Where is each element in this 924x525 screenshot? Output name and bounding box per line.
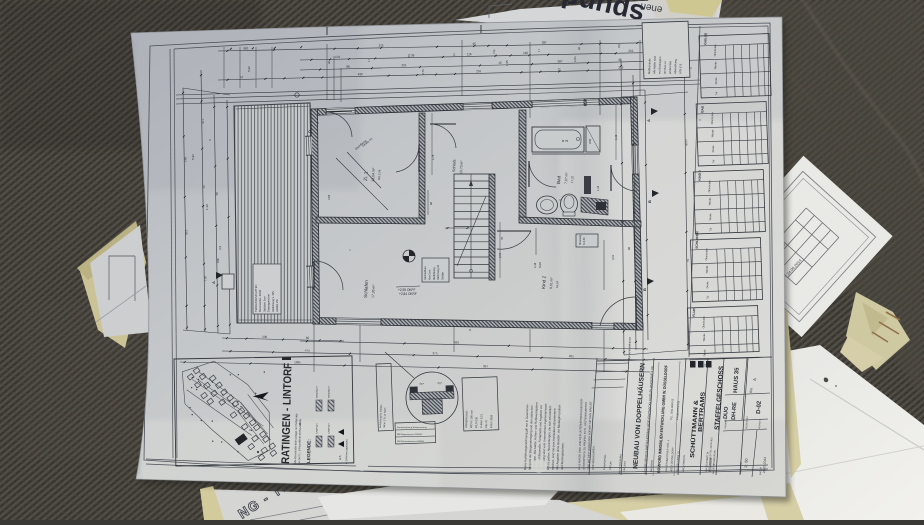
svg-text:88: 88	[627, 247, 631, 250]
svg-text:TERRASSENPLATTEN: TERRASSENPLATTEN	[254, 285, 258, 312]
svg-text:176: 176	[201, 119, 205, 124]
svg-text:1 : 50: 1 : 50	[744, 458, 749, 468]
svg-text:Abdichtung n. DIN: Abdichtung n. DIN	[271, 291, 275, 312]
svg-text:RASENGITT.: RASENGITT.	[328, 385, 331, 398]
svg-text:387: 387	[483, 364, 488, 368]
svg-text:U-Wert 0,21: U-Wert 0,21	[479, 413, 484, 428]
svg-text:Oberboden: Oberboden	[705, 247, 708, 260]
svg-text:399: 399	[216, 258, 220, 263]
svg-text:3,65: 3,65	[327, 194, 331, 200]
svg-text:1,34: 1,34	[596, 185, 600, 191]
svg-text:Kennzeichnung Entwässerung: Kennzeichnung Entwässerung	[397, 426, 427, 429]
svg-text:Decke: Decke	[706, 281, 709, 289]
svg-text:D-02: D-02	[756, 400, 763, 414]
svg-text:DUO: DUO	[723, 406, 730, 419]
svg-text:Zi. 1: Zi. 1	[363, 171, 369, 181]
svg-text:Betonwerkst. 40/40: Betonwerkst. 40/40	[258, 289, 262, 312]
svg-text:CARPORT: CARPORT	[328, 423, 331, 434]
svg-text:Oberboden: Oberboden	[708, 179, 711, 192]
svg-text:139: 139	[184, 229, 188, 234]
svg-text:3,76: 3,76	[421, 69, 425, 75]
svg-text:WM: WM	[588, 138, 592, 144]
svg-text:Tür: Tür	[715, 91, 718, 95]
svg-text:5x18: 5x18	[538, 262, 542, 268]
svg-text:Bad: Bad	[556, 175, 561, 184]
svg-text:Oberboden: Oberboden	[702, 315, 705, 328]
svg-text:ATB 675: ATB 675	[678, 63, 682, 74]
svg-text:88: 88	[215, 192, 219, 196]
svg-text:592: 592	[183, 157, 187, 162]
svg-text:Rie: Rie	[749, 388, 753, 393]
svg-text:Wände: Wände	[703, 333, 706, 342]
svg-text:2,38: 2,38	[533, 262, 537, 268]
svg-text:Drainagemörtel: Drainagemörtel	[267, 294, 271, 312]
svg-text:375: 375	[492, 49, 496, 54]
svg-text:116: 116	[467, 52, 472, 56]
svg-text:Wände: Wände	[706, 265, 709, 274]
svg-text:CARPORT: CARPORT	[316, 423, 319, 434]
svg-text:981: 981	[243, 46, 248, 50]
svg-text:RASENGITT.: RASENGITT.	[316, 385, 319, 398]
svg-text:+2,84 OKRF: +2,84 OKRF	[399, 292, 417, 296]
svg-text:u. Zufahrten gepflastert: u. Zufahrten gepflastert	[345, 439, 349, 464]
svg-text:FLUR: FLUR	[692, 307, 696, 316]
svg-text:LEGENDE:: LEGENDE:	[306, 439, 312, 463]
svg-text:135: 135	[523, 51, 528, 55]
svg-text:GA5 (B): GA5 (B)	[703, 33, 707, 45]
svg-text:436: 436	[358, 72, 363, 76]
svg-text:1,76: 1,76	[431, 154, 435, 160]
svg-text:536: 536	[262, 335, 267, 339]
svg-text:88: 88	[429, 202, 433, 205]
svg-text:201: 201	[401, 63, 406, 67]
svg-text:3,9: 3,9	[218, 245, 222, 250]
svg-text:Abweichung: Abweichung	[673, 59, 678, 74]
svg-text:A: A	[211, 281, 216, 284]
svg-text:A: A	[752, 378, 757, 381]
svg-text:Sonnenkollektoren: Sonnenkollektoren	[627, 336, 632, 360]
svg-text:A: A	[646, 119, 651, 122]
svg-text:vor Baubeginn: vor Baubeginn	[657, 56, 662, 74]
svg-text:57: 57	[240, 75, 244, 79]
svg-text:36: 36	[411, 53, 415, 57]
svg-text:Tür: Tür	[712, 159, 715, 163]
svg-text:474: 474	[305, 349, 310, 353]
svg-text:OK 2,96: OK 2,96	[377, 169, 382, 180]
svg-text:17,35 m²: 17,35 m²	[371, 284, 376, 298]
svg-text:11: 11	[558, 67, 562, 71]
svg-text:375: 375	[379, 44, 384, 48]
svg-text:592: 592	[633, 181, 637, 186]
svg-text:89: 89	[306, 336, 310, 340]
svg-text:5,92: 5,92	[247, 66, 251, 72]
svg-text:Alle Maße sind: Alle Maße sind	[652, 56, 657, 74]
svg-text:SCHLAFEN: SCHLAFEN	[695, 231, 700, 249]
svg-text:Splittbett 5cm: Splittbett 5cm	[262, 296, 266, 312]
svg-text:dg ▪: dg ▪	[419, 381, 424, 385]
svg-text:201: 201	[617, 43, 621, 48]
svg-text:9,61 m²: 9,61 m²	[549, 276, 554, 289]
svg-text:7,67 m²: 7,67 m²	[564, 171, 569, 184]
svg-text:BAD: BAD	[700, 105, 704, 113]
svg-text:387: 387	[542, 40, 547, 44]
svg-text:Brüstung: Brüstung	[579, 234, 582, 245]
svg-text:Tür: Tür	[706, 295, 709, 299]
svg-text:1,95: 1,95	[505, 60, 509, 66]
svg-text:5,92: 5,92	[191, 154, 195, 160]
svg-text:2,01: 2,01	[498, 252, 502, 258]
svg-text:Maßkontrolle: Maßkontrolle	[647, 58, 652, 74]
svg-text:Decke: Decke	[712, 145, 715, 153]
svg-text:Gefälle: Gefälle	[442, 271, 445, 280]
svg-text:36: 36	[202, 185, 206, 189]
svg-text:375: 375	[432, 351, 437, 355]
svg-text:387: 387	[557, 59, 562, 63]
svg-text:Gefälle 2%: Gefälle 2%	[275, 299, 279, 312]
svg-text:17,22: 17,22	[570, 175, 574, 183]
svg-text:Decke: Decke	[715, 77, 718, 85]
svg-text:WDVS 160 mm: WDVS 160 mm	[469, 410, 474, 428]
svg-text:Dachaufbau: Dachaufbau	[424, 266, 427, 280]
svg-text:Kies 5cm: Kies 5cm	[428, 270, 431, 280]
svg-text:76: 76	[686, 259, 690, 263]
svg-text:B: B	[647, 200, 652, 203]
svg-text:Kind 2: Kind 2	[541, 275, 547, 289]
svg-text:Kfw 70: Kfw 70	[484, 419, 488, 428]
svg-text:DH-RE: DH-RE	[731, 402, 738, 420]
svg-text:Dämmung 16: Dämmung 16	[437, 264, 440, 280]
svg-text:Wände: Wände	[711, 129, 714, 138]
svg-text:176: 176	[335, 55, 340, 59]
svg-text:EnEV 2009: EnEV 2009	[489, 414, 493, 428]
svg-text:76: 76	[500, 237, 504, 240]
svg-text:A A: A A	[338, 455, 342, 460]
svg-text:DATUM: DATUM	[609, 462, 613, 471]
svg-text:13,73 m²: 13,73 m²	[459, 160, 464, 174]
svg-text:Abdichtung: Abdichtung	[433, 267, 436, 280]
svg-text:16,24: 16,24	[555, 280, 559, 288]
svg-text:95: 95	[473, 42, 477, 46]
svg-text:am Bau zu: am Bau zu	[663, 61, 667, 74]
svg-text:Wände: Wände	[708, 197, 711, 206]
svg-text:ANMERKUNG:: ANMERKUNG:	[464, 410, 469, 428]
svg-text:1,39: 1,39	[614, 134, 618, 140]
svg-text:981: 981	[454, 340, 459, 344]
svg-text:B 75: B 75	[562, 139, 569, 143]
svg-text:1,39: 1,39	[205, 204, 209, 210]
svg-text:Oberboden: Oberboden	[714, 43, 717, 56]
svg-text:3,51: 3,51	[611, 254, 615, 260]
svg-text:Schlafen: Schlafen	[363, 279, 369, 298]
svg-text:201: 201	[628, 49, 633, 53]
svg-text:B: B	[642, 288, 647, 291]
svg-text:KIND 2: KIND 2	[698, 170, 702, 181]
svg-text:1139: 1139	[684, 139, 688, 146]
svg-text:88: 88	[346, 65, 350, 69]
svg-text:prüfen! Bei: prüfen! Bei	[668, 61, 672, 75]
svg-text:SW Schmutzwasser DN100: SW Schmutzwasser DN100	[397, 440, 425, 443]
svg-text:Tür: Tür	[709, 227, 712, 231]
svg-text:RATINGEN - LINTORF: RATINGEN - LINTORF	[280, 363, 294, 464]
svg-text:16: 16	[498, 61, 502, 65]
svg-text:201: 201	[203, 276, 207, 281]
svg-text:Oberboden: Oberboden	[711, 111, 714, 124]
svg-text:WLG 035: WLG 035	[474, 416, 478, 428]
svg-text:Decke: Decke	[703, 349, 706, 357]
svg-text:Schlafz.: Schlafz.	[452, 158, 457, 172]
svg-text:201: 201	[407, 53, 411, 58]
svg-text:1085: 1085	[294, 360, 301, 364]
svg-text:h=0,90: h=0,90	[583, 237, 586, 245]
svg-text:RW Regenwasser DN100: RW Regenwasser DN100	[397, 433, 423, 436]
svg-text:13,04 m²: 13,04 m²	[371, 167, 376, 182]
svg-text:2,01: 2,01	[573, 56, 577, 62]
svg-text:201: 201	[569, 354, 574, 358]
svg-text:Ag ▪: Ag ▪	[437, 381, 442, 385]
svg-text:Decke: Decke	[709, 213, 712, 221]
svg-text:201: 201	[476, 69, 481, 73]
svg-text:Wände: Wände	[714, 61, 717, 70]
